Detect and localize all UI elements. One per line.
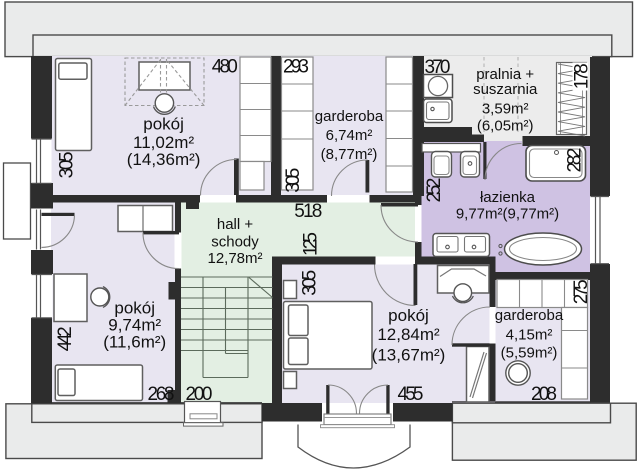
svg-text:305: 305 xyxy=(283,168,304,193)
svg-text:200: 200 xyxy=(186,384,213,405)
svg-text:łazienka: łazienka xyxy=(480,189,536,206)
svg-text:252: 252 xyxy=(424,178,445,203)
svg-text:(14,36m²): (14,36m²) xyxy=(127,150,201,169)
svg-text:208: 208 xyxy=(531,384,557,405)
svg-text:hall +: hall + xyxy=(217,216,254,233)
svg-text:(6,05m²): (6,05m²) xyxy=(477,118,534,135)
svg-text:3,59m²: 3,59m² xyxy=(482,101,529,118)
svg-text:(5,59m²): (5,59m²) xyxy=(501,345,558,362)
svg-text:305: 305 xyxy=(57,151,78,178)
svg-text:268: 268 xyxy=(148,384,175,405)
svg-text:518: 518 xyxy=(294,201,322,222)
svg-text:9,77m²(9,77m²): 9,77m²(9,77m²) xyxy=(456,206,559,223)
svg-text:(13,67m²): (13,67m²) xyxy=(372,345,446,364)
svg-text:455: 455 xyxy=(398,384,424,405)
svg-text:480: 480 xyxy=(212,57,238,78)
svg-text:370: 370 xyxy=(425,57,451,78)
svg-text:282: 282 xyxy=(565,148,586,173)
svg-text:garderoba: garderoba xyxy=(315,108,384,125)
svg-text:178: 178 xyxy=(572,63,593,89)
svg-text:garderoba: garderoba xyxy=(495,307,564,324)
svg-text:125: 125 xyxy=(301,232,322,256)
svg-text:305: 305 xyxy=(300,270,321,296)
svg-text:schody: schody xyxy=(211,234,259,251)
svg-text:275: 275 xyxy=(571,279,592,304)
svg-text:4,15m²: 4,15m² xyxy=(506,326,553,343)
svg-text:pokój: pokój xyxy=(388,306,429,325)
svg-text:293: 293 xyxy=(283,57,309,78)
svg-text:(11,6m²): (11,6m²) xyxy=(103,333,166,352)
svg-text:suszarnia: suszarnia xyxy=(473,81,538,98)
svg-text:pokój: pokój xyxy=(143,115,184,134)
svg-text:6,74m²: 6,74m² xyxy=(326,127,373,144)
svg-text:(8,77m²): (8,77m²) xyxy=(321,146,378,163)
svg-text:442: 442 xyxy=(55,326,76,351)
svg-text:12,84m²: 12,84m² xyxy=(377,325,440,344)
svg-text:12,78m²: 12,78m² xyxy=(207,250,262,267)
